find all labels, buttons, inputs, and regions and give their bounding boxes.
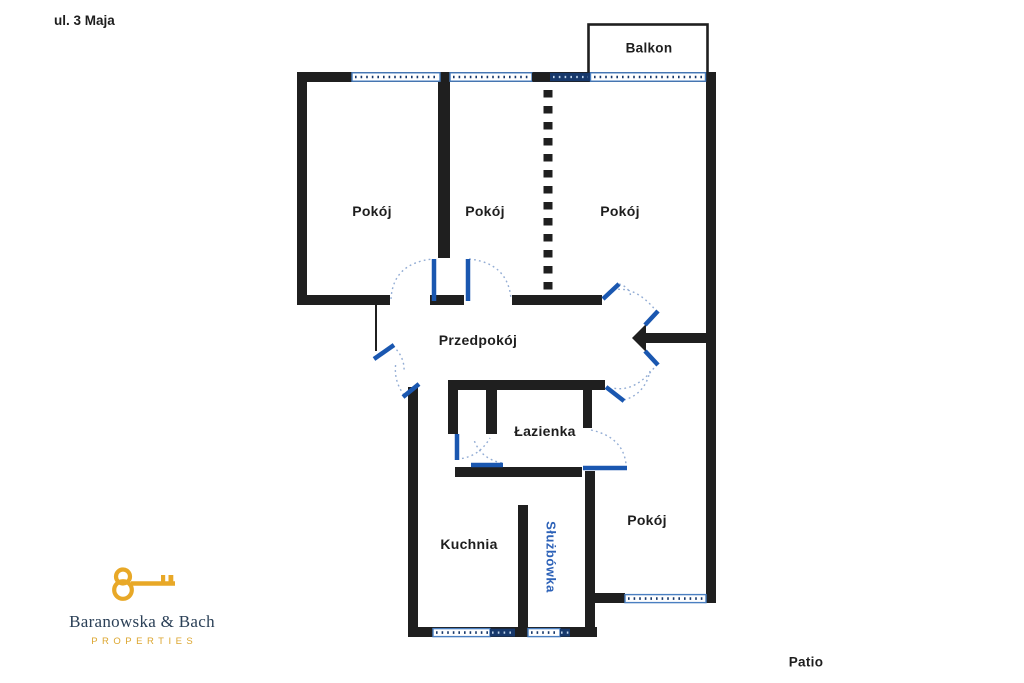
room-label-lazienka: Łazienka <box>514 423 576 439</box>
wall-przedpokoj-east <box>646 333 706 343</box>
wall-lazienka-stub-mid <box>486 390 497 434</box>
logo: Baranowska & Bach PROPERTIES <box>60 563 224 647</box>
room-label-kuchnia: Kuchnia <box>440 536 497 552</box>
wall-kuchnia-sluzbowka-divider <box>518 505 528 637</box>
window-top-2 <box>450 73 532 81</box>
window-bottom-1 <box>433 629 490 637</box>
wall-lazienka-top <box>448 380 605 390</box>
wall-east-doorstop <box>632 324 646 352</box>
wall-lazienka-stub-right <box>583 390 592 428</box>
logo-subtitle: PROPERTIES <box>60 636 224 647</box>
window-bottom-2 <box>528 629 560 637</box>
wall-lazienka-bottom <box>455 467 582 477</box>
window-pokoj4 <box>625 595 706 603</box>
door-leaf-pokoj3 <box>603 284 619 299</box>
wall-lazienka-stub-left <box>448 390 458 434</box>
wall-divider-pokoj1-2 <box>438 72 450 258</box>
door-arc-south <box>624 371 650 400</box>
wall-sluzbowka-right <box>585 471 595 637</box>
door-arc-west-2 <box>395 362 404 395</box>
wall-pokoj1-bottom <box>297 295 390 305</box>
street-label: ul. 3 Maja <box>54 13 115 28</box>
door-leaf-east-upper <box>645 311 658 325</box>
key-icon <box>97 563 187 610</box>
navy-band-top <box>532 73 590 81</box>
balcony-label: Balkon <box>626 41 673 56</box>
walls <box>297 72 716 637</box>
windows-navy <box>490 73 590 637</box>
wall-pokoj4-bottom <box>585 593 625 603</box>
room-label-pokoj2: Pokój <box>465 203 505 219</box>
door-arc-pokoj4 <box>591 430 626 464</box>
room-label-przedpokoj: Przedpokój <box>439 332 517 348</box>
wall-left-upper <box>297 72 307 305</box>
door-arc-east-lower <box>613 364 657 389</box>
room-label-pokoj4: Pokój <box>627 512 667 528</box>
patio-label: Patio <box>789 655 824 670</box>
door-arc-pokoj2 <box>469 259 511 299</box>
floor-plan-page: ul. 3 Maja Balkon Pokój Pokój Pokój Prze… <box>0 0 1024 683</box>
windows-light <box>352 73 706 637</box>
navy-band-bottom-1 <box>490 629 515 637</box>
window-balcony <box>591 73 706 81</box>
wall-right-outer <box>706 72 716 603</box>
door-leaf-east-lower <box>645 351 658 365</box>
wall-left-lower <box>408 387 418 637</box>
door-arc-pokoj1 <box>391 259 433 299</box>
window-top-1 <box>352 73 440 81</box>
room-label-sluzbowka: Służbówka <box>544 521 559 593</box>
logo-name: Baranowska & Bach <box>60 612 224 632</box>
door-arc-east-upper <box>610 289 657 312</box>
room-label-pokoj1: Pokój <box>352 203 392 219</box>
door-arc-west-1 <box>393 346 404 372</box>
navy-band-bottom-2 <box>560 629 570 637</box>
door-leaf-south <box>606 387 624 401</box>
door-arc-lazienka-1 <box>457 438 490 459</box>
room-label-pokoj3: Pokój <box>600 203 640 219</box>
wall-pokoj23-bottom <box>512 295 602 305</box>
door-arc-lazienka-2 <box>474 440 502 463</box>
